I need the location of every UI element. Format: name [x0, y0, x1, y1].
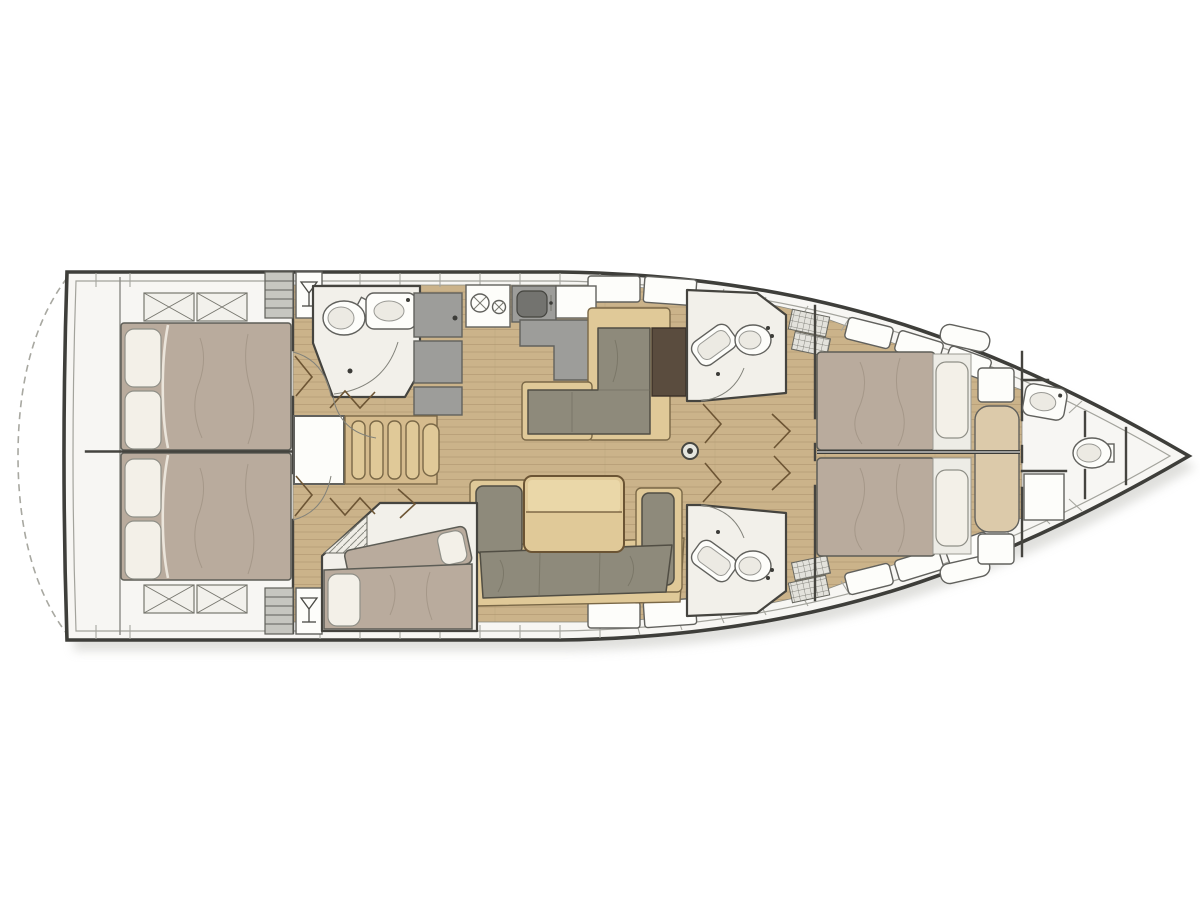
aft-head [313, 286, 420, 397]
engine-box [294, 416, 344, 484]
forward-cabin-starboard [817, 352, 971, 450]
washbasin [1021, 383, 1068, 422]
u-sofa-left-arm [476, 486, 522, 554]
fwd-bench-seat [975, 406, 1019, 532]
fridge-cabinet [414, 293, 462, 337]
shower-drain [716, 530, 720, 534]
companionway-stairs [345, 416, 439, 484]
washbasin [366, 293, 416, 329]
wet-bar-bottom [296, 588, 322, 634]
saloon [470, 476, 684, 606]
shower-drain [716, 372, 720, 376]
fwd-locker-bottom [978, 534, 1014, 564]
saloon-table [524, 476, 624, 552]
yacht-floor-plan-canvas [0, 0, 1200, 900]
mid-head-starboard [687, 290, 786, 401]
pillow [936, 362, 968, 438]
head-cabinet [1024, 474, 1064, 520]
pillow [936, 470, 968, 546]
mid-head-port [687, 505, 786, 616]
double-bed [817, 458, 935, 556]
forward-cabin-port [817, 458, 971, 556]
pillow [125, 459, 161, 517]
fwd-locker-top [978, 368, 1014, 402]
shelf-locker-top [265, 272, 293, 318]
pillow [328, 574, 360, 626]
chart-table [652, 328, 686, 396]
mast-post [682, 443, 698, 459]
double-bed [817, 352, 935, 450]
stove [466, 285, 510, 327]
galley-cabinet [414, 387, 462, 415]
pillow [125, 521, 161, 579]
aft-cabin-starboard [121, 323, 291, 450]
shower-drain [348, 369, 353, 374]
galley-sink [512, 286, 556, 322]
companionway [294, 416, 439, 484]
swim-platform-outline [18, 278, 67, 634]
aft-cabin-port [121, 453, 291, 580]
yacht-floor-plan [0, 0, 1200, 900]
pillow [125, 391, 161, 449]
fridge-handle [453, 316, 458, 321]
galley-cabinet [414, 341, 462, 383]
shelf-locker-bottom [265, 588, 293, 634]
pillow [125, 329, 161, 387]
